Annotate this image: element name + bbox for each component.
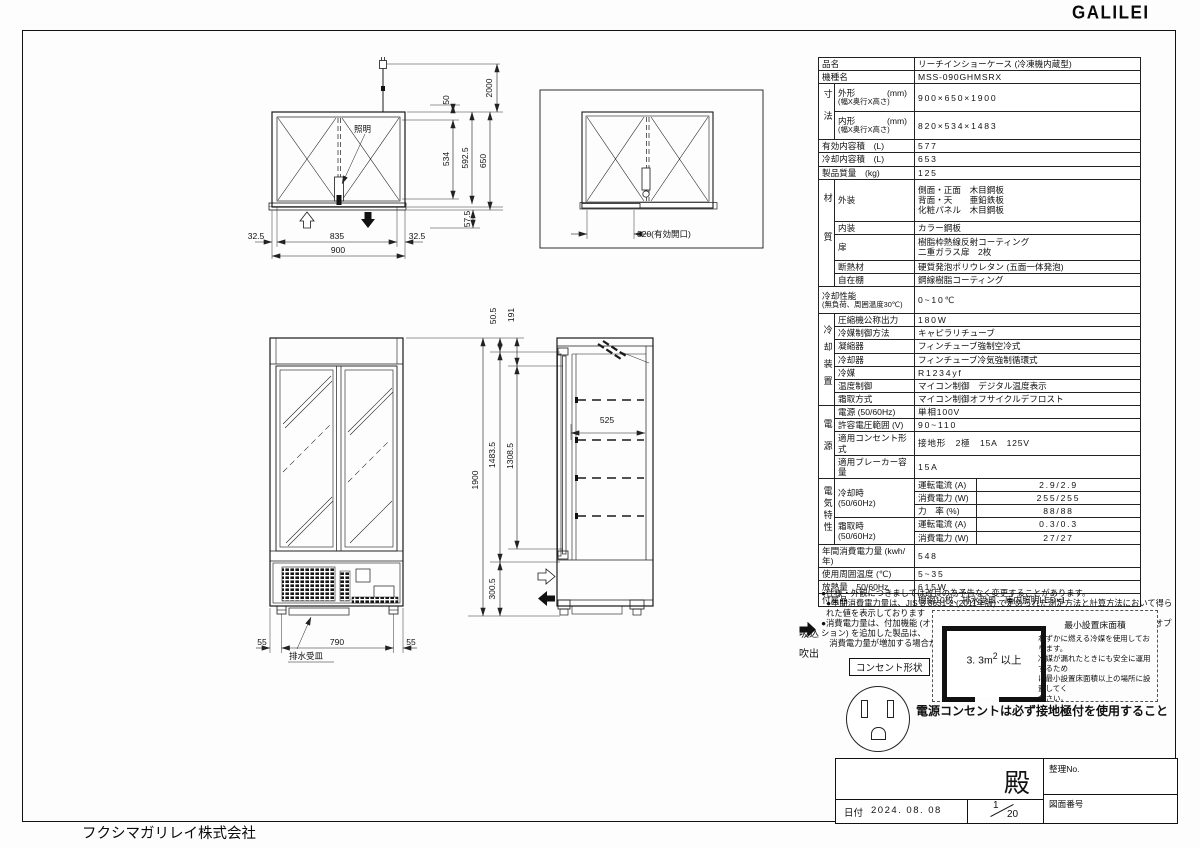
spec-value: 900×650×1900	[915, 84, 1141, 112]
dim-label: 191	[506, 308, 516, 322]
spec-value: 鋼線樹脂コーティング	[915, 273, 1141, 286]
front-view-drawing	[256, 338, 417, 662]
drawing-no-label: 図面番号	[1049, 798, 1083, 810]
spec-label: 消費電力 (W)	[915, 531, 977, 544]
min-floor-area-panel: 3. 3m2 以上 最小設置床面積 わずかに燃える冷媒を使用しております。 冷媒…	[932, 610, 1158, 702]
spec-sublabel: (無負荷、周囲温度30℃)	[822, 301, 911, 310]
spec-label: 年間消費電力量 (kwh/年)	[819, 544, 915, 567]
spec-label: 品名	[819, 58, 915, 71]
spec-value: 2.9/2.9	[977, 478, 1141, 491]
spec-label: 凝縮器	[835, 340, 915, 353]
scale-numerator: 1	[993, 800, 999, 811]
spec-value: 硬質発泡ポリウレタン (五面一体発泡)	[915, 260, 1141, 273]
airflow-legend: 吸込 吹出	[799, 622, 819, 662]
spec-sublabel: (幅X奥行X高さ)	[838, 98, 911, 107]
spec-label: 自在棚	[835, 273, 915, 286]
dim-label: 534	[441, 152, 451, 166]
dim-label: 650	[478, 154, 488, 168]
spec-group: 寸法	[819, 84, 835, 140]
title-block-divider	[1043, 794, 1177, 795]
spec-value: R1234yf	[915, 366, 1141, 379]
min-area-value: 3. 3m2 以上	[947, 651, 1041, 668]
dim-label: 1483.5	[487, 442, 497, 468]
spec-value: 27/27	[977, 531, 1141, 544]
dim-label: 1900	[470, 470, 480, 489]
min-area-title: 最小設置床面積	[1039, 618, 1151, 631]
dim-label: 50	[441, 95, 451, 105]
dim-label: 320(有効開口)	[637, 229, 691, 239]
spec-table-container: 品名 リーチインショーケース (冷凍機内蔵型) 機種名 MSS-090GHMSR…	[818, 57, 1141, 607]
plan-open-view-drawing	[540, 90, 763, 248]
blow-arrow-icon	[799, 622, 816, 637]
spec-group: 冷却装置	[819, 314, 835, 406]
spec-label: 許容電圧範囲 (V)	[835, 419, 915, 432]
outlet-slot-icon	[887, 700, 894, 718]
title-block: 殿 整理No. 図面番号 日付 2024. 08. 08 1 20	[835, 758, 1178, 824]
ref-no-label: 整理No.	[1049, 763, 1080, 775]
spec-value: 577	[915, 140, 1141, 153]
spec-label: 機種名	[819, 71, 915, 84]
spec-label: 圧縮機公称出力	[835, 314, 915, 327]
spec-label: 有効内容積 (L)	[819, 140, 915, 153]
side-view-drawing	[406, 338, 653, 616]
front-view-dimensions: 55 790 55 排水受皿	[257, 637, 416, 661]
scale-denominator: 20	[1007, 809, 1018, 820]
outlet-shape-label: コンセント形状	[849, 658, 930, 676]
dim-label: 900	[331, 245, 345, 255]
airflow-blow-row: 吹出	[799, 642, 819, 662]
outlet-symbol	[846, 686, 910, 752]
dim-label: 32.5	[409, 231, 426, 241]
outlet-ground-icon	[871, 727, 886, 740]
spec-label: 冷却内容積 (L)	[819, 153, 915, 166]
spec-value: フィンチューブ強制空冷式	[915, 340, 1141, 353]
dim-label: 50.5	[488, 307, 498, 324]
spec-value: リーチインショーケース (冷凍機内蔵型)	[915, 58, 1141, 71]
grounding-warning-text: 電源コンセントは必ず接地極付を使用すること	[916, 702, 1168, 719]
spec-label: 霜取時 (50/60Hz)	[835, 518, 915, 544]
date-row: 日付 2024. 08. 08	[844, 805, 942, 819]
spec-table: 品名 リーチインショーケース (冷凍機内蔵型) 機種名 MSS-090GHMSR…	[818, 57, 1141, 607]
spec-label: 冷却性能 (無負荷、周囲温度30℃)	[819, 287, 915, 314]
min-area-suffix: 以上	[1001, 655, 1022, 667]
date-label: 日付	[844, 805, 863, 819]
spec-value: フィンチューブ冷気強制循環式	[915, 353, 1141, 366]
spec-unit: (mm)	[887, 116, 907, 126]
spec-label: 断熱材	[835, 260, 915, 273]
spec-label: 力 率 (%)	[915, 505, 977, 518]
addressee-label: 殿	[1004, 763, 1030, 800]
spec-value: 255/255	[977, 492, 1141, 505]
dim-label: 790	[330, 637, 344, 647]
spec-label: 内装	[835, 221, 915, 234]
spec-value: 820×534×1483	[915, 112, 1141, 140]
spec-group: 電源	[819, 406, 835, 479]
spec-label: 霜取方式	[835, 392, 915, 405]
dim-label: 525	[600, 415, 614, 425]
spec-value: マイコン制御 デジタル温度表示	[915, 379, 1141, 392]
spec-group: 電気特性	[819, 478, 835, 544]
dim-label: 835	[330, 231, 344, 241]
spec-value: カラー鋼板	[915, 221, 1141, 234]
spec-label: 外装	[835, 179, 915, 221]
room-symbol: 3. 3m2 以上	[942, 626, 1046, 702]
spec-label: 外形(mm) (幅X奥行X高さ)	[835, 84, 915, 112]
min-area-number: 3. 3m	[966, 655, 992, 667]
dim-label: 55	[406, 637, 416, 647]
spec-label: 冷却器	[835, 353, 915, 366]
spec-value: 548	[915, 544, 1141, 567]
min-area-caption: わずかに燃える冷媒を使用しております。 冷媒が漏れたときにも安全に運用するため …	[1038, 634, 1154, 704]
spec-value: 側面・正面 木目鋼板 背面・天 亜鉛鉄板 化粧パネル 木目鋼板	[915, 179, 1141, 221]
dim-label: 300.5	[487, 578, 497, 600]
spec-group: 材質	[819, 179, 835, 286]
date-value: 2024. 08. 08	[871, 805, 942, 819]
dim-label: 55	[257, 637, 267, 647]
spec-value: 125	[915, 166, 1141, 179]
spec-label: 冷却時 (50/60Hz)	[835, 478, 915, 517]
spec-label: 製品質量 (kg)	[819, 166, 915, 179]
spec-label: 内形(mm) (幅X奥行X高さ)	[835, 112, 915, 140]
outlet-slot-icon	[861, 700, 868, 718]
spec-label: 適用コンセント形式	[835, 432, 915, 455]
min-area-sup: 2	[993, 651, 998, 661]
spec-value: 単相100V	[915, 406, 1141, 419]
dim-label: 1308.5	[505, 443, 515, 469]
spec-label: 冷媒	[835, 366, 915, 379]
spec-value: 樹脂枠熱線反射コーティング 二重ガラス扉 2枚	[915, 234, 1141, 260]
spec-value: 88/88	[977, 505, 1141, 518]
dim-label: 32.5	[248, 231, 265, 241]
dim-label: 592.5	[460, 147, 470, 169]
spec-value: 653	[915, 153, 1141, 166]
title-block-divider	[1043, 759, 1044, 823]
drain-pan-label: 排水受皿	[289, 651, 324, 661]
spec-unit: (mm)	[887, 88, 907, 98]
side-view-dimensions: 1900 50.5 1483.5 300.5 191 1308.5 525	[470, 307, 614, 599]
spec-value: キャピラリチューブ	[915, 327, 1141, 340]
spec-label: 温度制御	[835, 379, 915, 392]
dim-label: 57.5	[462, 210, 472, 227]
note-line: ●仕様・外観につきましては改良の為予告なく変更することがあります。	[821, 588, 1173, 598]
spec-value: 5~35	[915, 567, 1141, 580]
spec-sublabel: (幅X奥行X高さ)	[838, 126, 911, 135]
spec-value: MSS-090GHMSRX	[915, 71, 1141, 84]
dim-label: 2000	[484, 78, 494, 97]
spec-label: 扉	[835, 234, 915, 260]
spec-label: 運転電流 (A)	[915, 518, 977, 531]
spec-value: マイコン制御オフサイクルデフロスト	[915, 392, 1141, 405]
spec-value: 180W	[915, 314, 1141, 327]
spec-label: 電源 (50/60Hz)	[835, 406, 915, 419]
spec-value: 0.3/0.3	[977, 518, 1141, 531]
spec-value: 15A	[915, 455, 1141, 478]
spec-label: 冷媒制御方法	[835, 327, 915, 340]
spec-value: 0~10℃	[915, 287, 1141, 314]
spec-value: 90~110	[915, 419, 1141, 432]
blow-label: 吹出	[799, 645, 819, 660]
spec-value: 接地形 2極 15A 125V	[915, 432, 1141, 455]
spec-label: 適用ブレーカー容量	[835, 455, 915, 478]
room-door-gap	[975, 697, 999, 703]
spec-label: 消費電力 (W)	[915, 492, 977, 505]
scale-cell: 1 20	[967, 799, 1043, 823]
spec-label: 運転電流 (A)	[915, 478, 977, 491]
spec-label: 使用周囲温度 (℃)	[819, 567, 915, 580]
lighting-label: 照明	[354, 124, 371, 134]
